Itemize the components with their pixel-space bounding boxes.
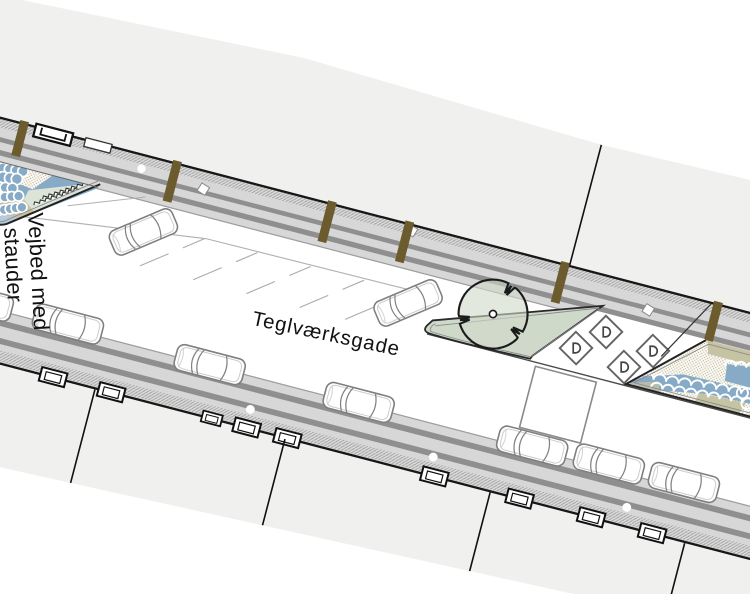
svg-text:stauder: stauder	[0, 227, 28, 303]
